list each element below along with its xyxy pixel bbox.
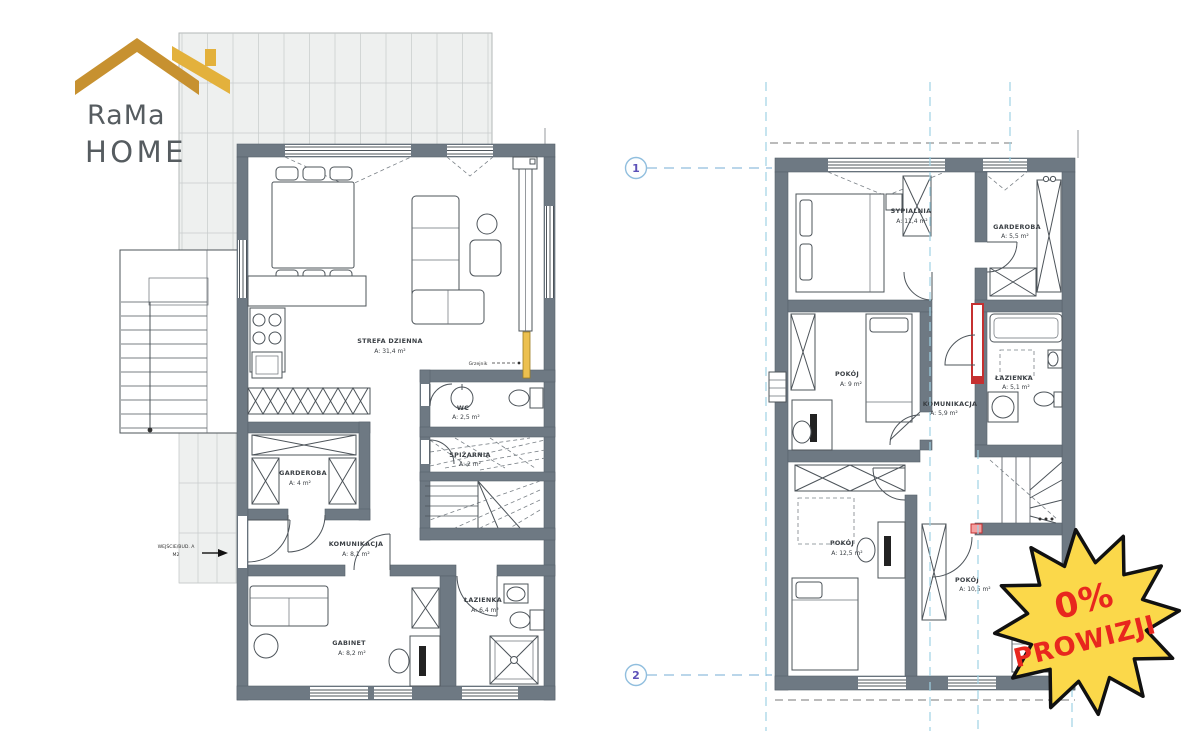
svg-text:A: 5,1 m²: A: 5,1 m² — [1002, 384, 1030, 391]
armchair — [470, 240, 501, 276]
svg-text:A: 2,5 m²: A: 2,5 m² — [452, 414, 480, 421]
svg-text:A: 31,4 m²: A: 31,4 m² — [374, 348, 406, 355]
entrance-label: WEJŚCIE/BUD. A — [158, 543, 196, 550]
svg-text:A: 6,4 m²: A: 6,4 m² — [471, 607, 499, 614]
room-label-wc: WC — [457, 404, 469, 412]
logo-chimney-icon — [205, 49, 216, 66]
svg-text:A: 8,1 m²: A: 8,1 m² — [342, 551, 370, 558]
room-label-garderoba-2: GARDEROBA — [993, 223, 1041, 231]
logo-type: HOME — [85, 135, 187, 169]
outdoor-stairs — [120, 250, 238, 433]
axis-marker-1: 1 — [626, 158, 773, 179]
room-label-strefa-dzienna: STREFA DZIENNA — [357, 337, 423, 345]
svg-text:A: 5,5 m²: A: 5,5 m² — [1001, 233, 1029, 240]
svg-text:A: 5,9 m²: A: 5,9 m² — [930, 410, 958, 417]
radiator-red-valve — [971, 376, 984, 384]
axis-marker-1-number: 1 — [632, 162, 640, 175]
entrance-label-2: M2 — [173, 552, 180, 558]
heating-marker — [971, 524, 982, 533]
svg-text:A: 10,5 m²: A: 10,5 m² — [959, 586, 991, 593]
svg-text:A: 8,2 m²: A: 8,2 m² — [338, 650, 366, 657]
room-label-sypialnia: SYPIALNIA — [891, 207, 932, 215]
logo-name: RaMa — [87, 100, 166, 131]
room-label-pokoj-12: POKÓJ — [830, 538, 854, 547]
floorplan-image: RaMa HOME WEJŚCIE/BUD. A M2 — [0, 0, 1200, 731]
radiator-yellow — [523, 332, 530, 378]
svg-text:A: 2 m²: A: 2 m² — [459, 461, 481, 468]
radiator-red — [972, 304, 983, 378]
axis-marker-2: 2 — [626, 665, 773, 686]
room-label-gabinet: GABINET — [332, 639, 366, 647]
room-label-komunikacja-2: KOMUNIKACJA — [923, 400, 978, 408]
room-label-pokoj-9: POKÓJ — [835, 369, 859, 378]
side-table — [477, 214, 497, 234]
room-label-spizarnia: SPIŻARNIA — [449, 450, 491, 459]
wc-toilet — [530, 388, 543, 408]
axis-marker-2-number: 2 — [632, 669, 640, 682]
room-label-garderoba: GARDEROBA — [279, 469, 327, 477]
svg-text:A: 12,5 m²: A: 12,5 m² — [831, 550, 863, 557]
heater-label: Grzejnik — [469, 361, 488, 367]
svg-text:A: 4 m²: A: 4 m² — [289, 480, 311, 487]
room-label-komunikacja: KOMUNIKACJA — [329, 540, 384, 548]
room-label-pokoj-10: POKÓJ — [955, 575, 979, 584]
room-label-lazienka-2: ŁAZIENKA — [994, 374, 1033, 382]
dining-table — [272, 167, 354, 283]
room-label-lazienka: ŁAZIENKA — [463, 596, 502, 604]
svg-text:A: 11,4 m²: A: 11,4 m² — [896, 218, 928, 225]
svg-text:A: 9 m²: A: 9 m² — [840, 381, 862, 388]
ground-floor-plan: Grzejnik — [237, 128, 555, 700]
